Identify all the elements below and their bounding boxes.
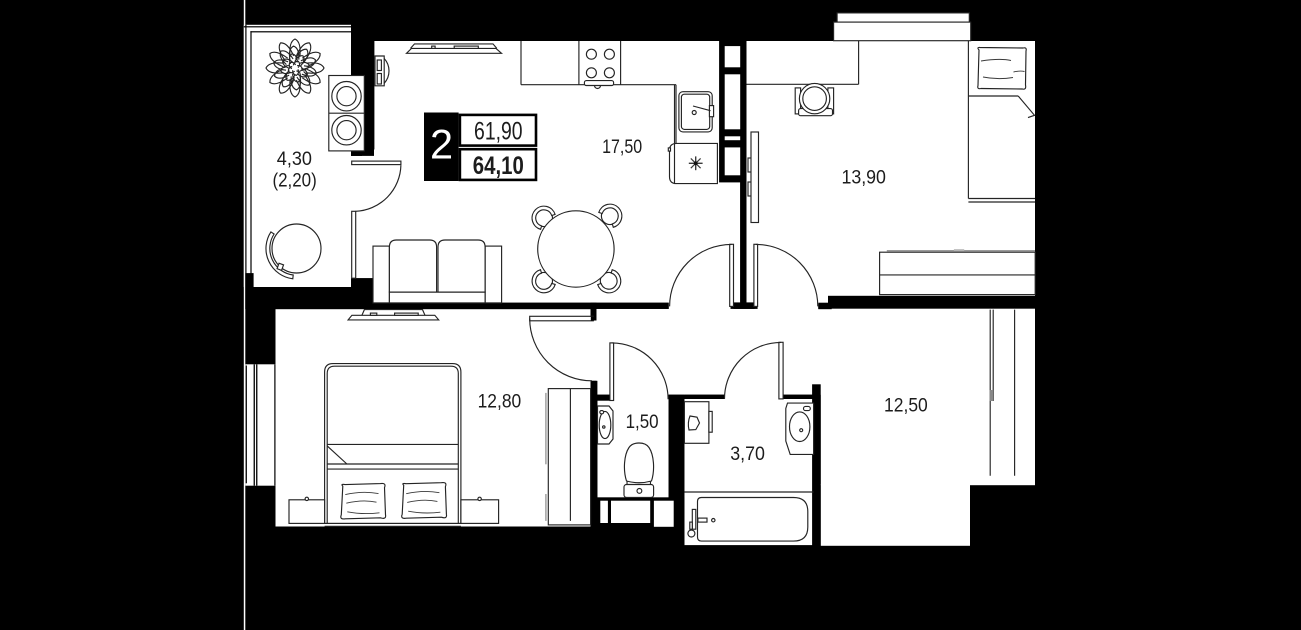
svg-text:12,50: 12,50 [884, 395, 928, 416]
svg-text:(2,20): (2,20) [272, 171, 316, 192]
svg-text:2: 2 [430, 121, 453, 168]
svg-text:13,90: 13,90 [841, 168, 886, 189]
svg-text:1,50: 1,50 [626, 412, 659, 433]
svg-text:4,30: 4,30 [277, 149, 312, 170]
svg-text:17,50: 17,50 [602, 137, 642, 158]
svg-text:61,90: 61,90 [474, 117, 523, 145]
svg-text:12,80: 12,80 [478, 391, 522, 412]
svg-text:3,70: 3,70 [730, 444, 765, 465]
svg-text:64,10: 64,10 [473, 152, 524, 180]
